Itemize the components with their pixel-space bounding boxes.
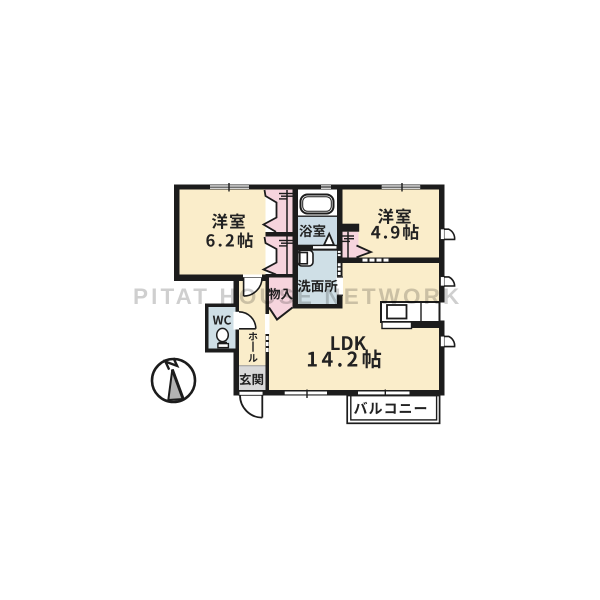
svg-text:PITAT HOUSE NETWORK: PITAT HOUSE NETWORK <box>133 284 462 309</box>
